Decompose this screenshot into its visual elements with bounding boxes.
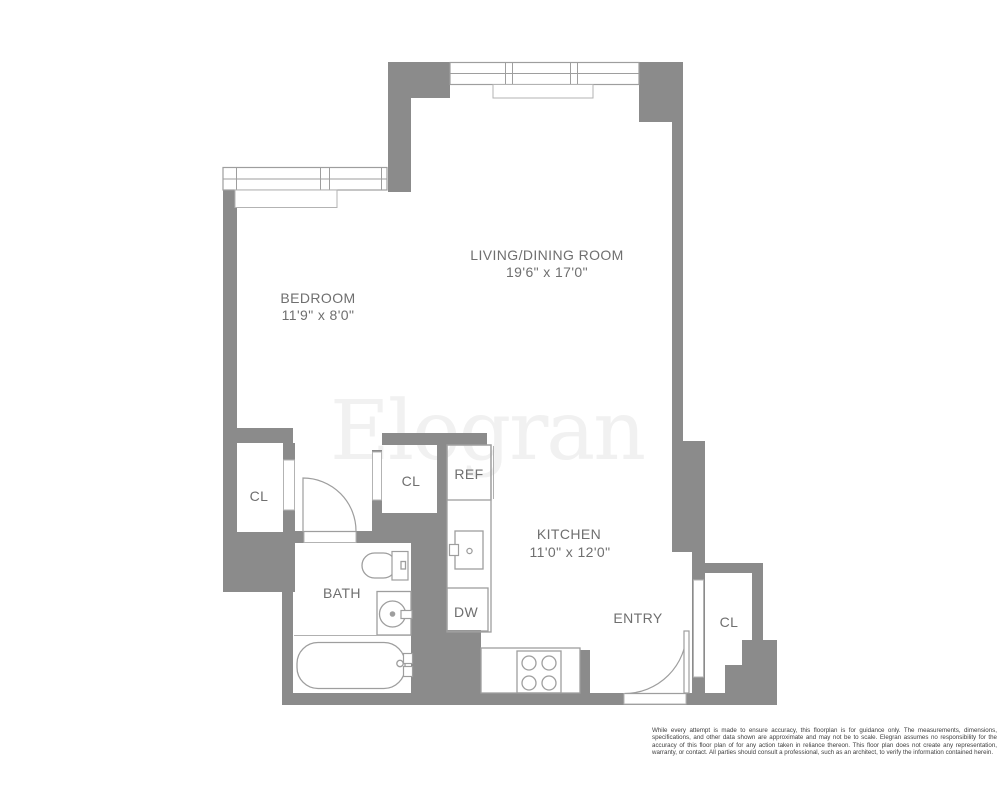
- burner: [542, 676, 556, 690]
- hall-closet-label: CL: [402, 473, 421, 489]
- wall-bath-west: [282, 592, 293, 705]
- bath-label: BATH: [323, 585, 361, 601]
- entry-label: ENTRY: [613, 610, 662, 626]
- wall-living-west: [388, 62, 411, 192]
- disclaimer-text: While every attempt is made to ensure ac…: [652, 727, 997, 757]
- entry-door-threshold: [624, 694, 686, 705]
- wall-counter-end-stub: [580, 650, 590, 693]
- entry-door-leaf: [684, 631, 689, 693]
- floorplan-page: Elegran: [0, 0, 1000, 800]
- wall-bedroom-closet-north: [223, 428, 293, 443]
- bedroom-closet-door: [284, 460, 295, 510]
- wall-entry-closet-east: [752, 573, 763, 640]
- bathtub: [297, 643, 405, 689]
- wall-bottom: [282, 693, 777, 705]
- refrigerator-label: REF: [454, 466, 483, 482]
- wall-kitchen-east: [672, 441, 705, 552]
- tub-faucet-lower: [404, 667, 413, 677]
- bath-fixtures: [294, 552, 413, 689]
- tub-faucet-upper: [404, 654, 413, 664]
- bedroom-dimensions: 11'9" x 8'0": [282, 307, 355, 323]
- living-room-dimensions: 19'6" x 17'0": [506, 264, 588, 280]
- oven-knob: [467, 548, 472, 553]
- bath-door-threshold: [304, 532, 356, 543]
- hall-closet-door: [373, 452, 382, 500]
- wall-hall-closet-east: [437, 445, 447, 513]
- living-room-window: [450, 63, 639, 99]
- window-sill-unit: [493, 85, 593, 99]
- wall-living-east: [672, 122, 683, 441]
- oven-handle: [450, 545, 459, 556]
- burner: [522, 656, 536, 670]
- wall-top-right-corner: [639, 62, 683, 122]
- oven: [455, 531, 483, 569]
- wall-kitchen-north: [382, 433, 487, 445]
- living-room-label: LIVING/DINING ROOM: [470, 247, 623, 263]
- entry-closet-label: CL: [720, 614, 739, 630]
- kitchen-label: KITCHEN: [537, 526, 601, 542]
- window-sill-unit: [235, 190, 337, 208]
- floorplan-drawing: Elegran: [0, 0, 1000, 800]
- toilet-bowl: [362, 553, 396, 578]
- dishwasher-label: DW: [454, 604, 479, 620]
- wall-kitchen-southwest-block: [411, 630, 481, 693]
- wall-stub: [692, 552, 705, 563]
- bath-door-swing: [303, 478, 356, 532]
- burner: [522, 676, 536, 690]
- wall-kitchen-west: [411, 542, 447, 630]
- entry-door-swing: [625, 632, 687, 694]
- tub-drain: [397, 660, 403, 666]
- wall-hall-closet-south: [382, 513, 447, 542]
- sink-faucet: [401, 611, 412, 619]
- kitchen-dimensions: 11'0" x 12'0": [530, 544, 611, 560]
- wall-bedroom-west: [223, 168, 237, 532]
- wall-left-block: [223, 532, 295, 592]
- bedroom-closet-label: CL: [250, 488, 269, 504]
- burner: [542, 656, 556, 670]
- bedroom-window: [223, 168, 387, 208]
- sink-drain: [390, 611, 396, 617]
- entry-closet-door: [694, 580, 704, 677]
- bedroom-label: BEDROOM: [280, 290, 355, 306]
